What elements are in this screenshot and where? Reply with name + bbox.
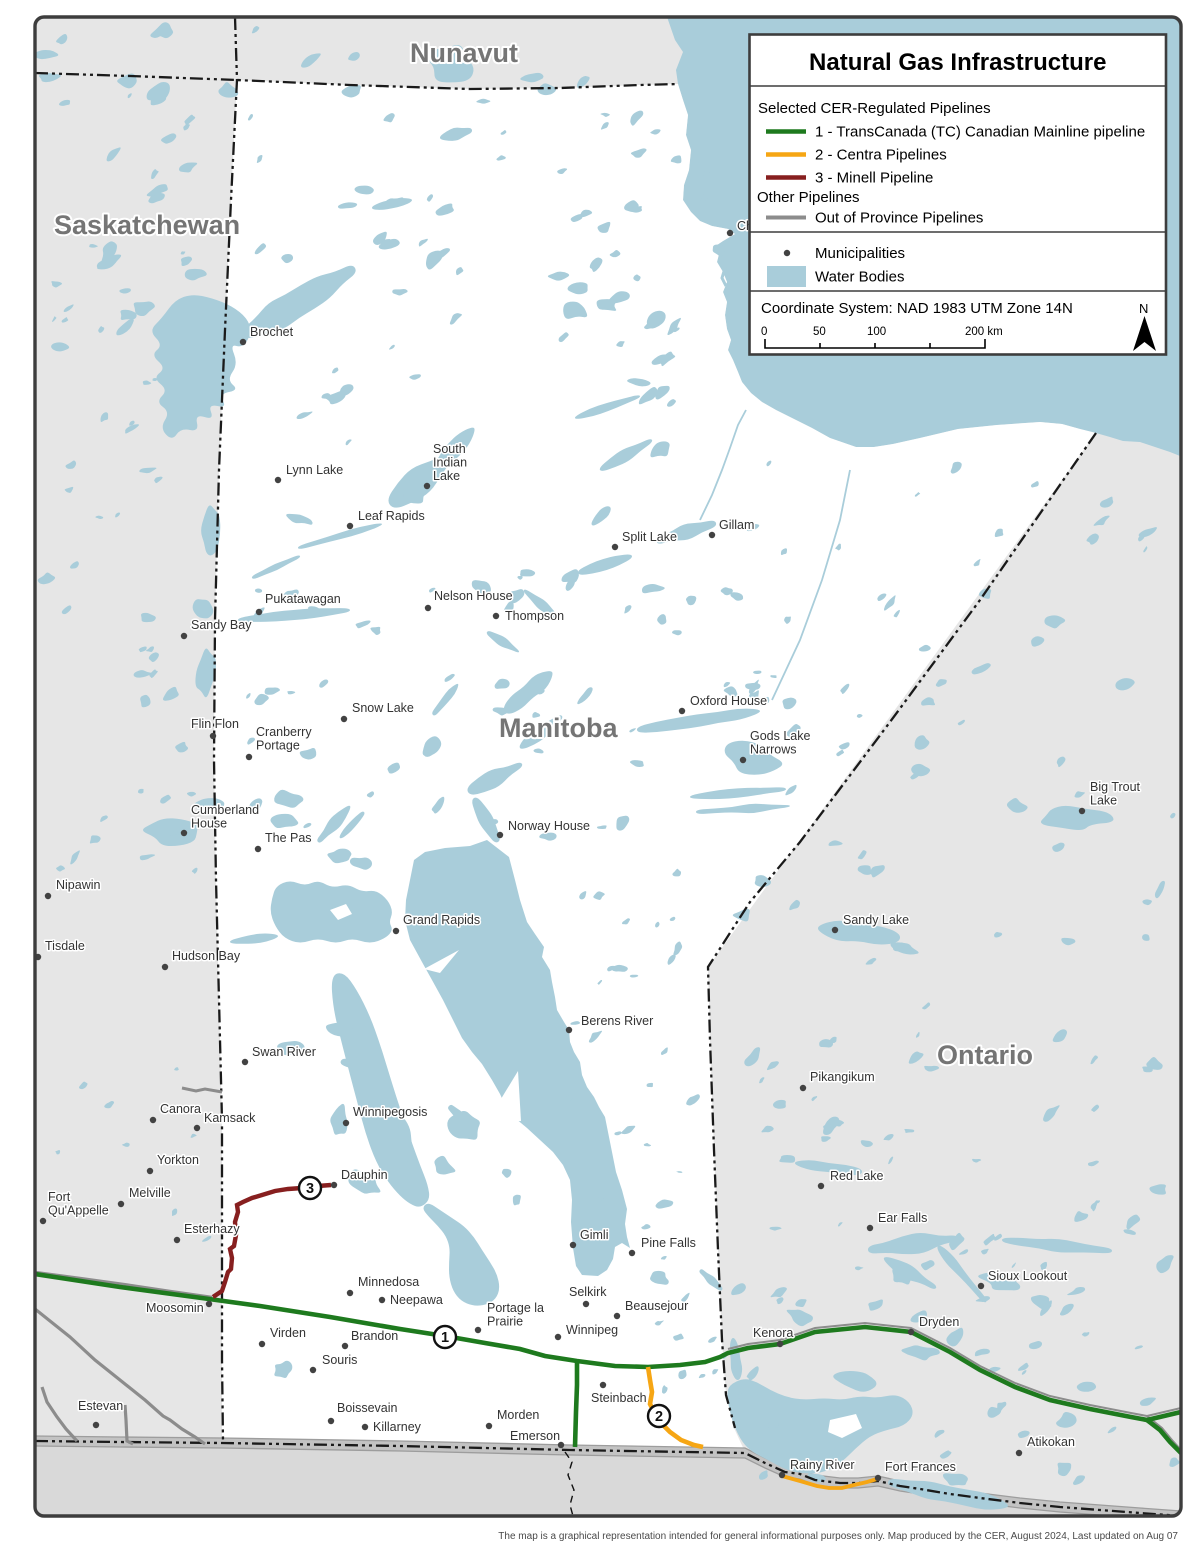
svg-text:Flin Flon: Flin Flon — [191, 717, 239, 731]
svg-text:Swan River: Swan River — [252, 1045, 316, 1059]
svg-text:Lake: Lake — [1090, 794, 1117, 808]
svg-text:Oxford House: Oxford House — [690, 694, 767, 708]
svg-text:Esterhazy: Esterhazy — [184, 1222, 240, 1236]
svg-text:Saskatchewan: Saskatchewan — [54, 210, 240, 240]
svg-text:Gimli: Gimli — [580, 1228, 608, 1242]
svg-text:Pukatawagan: Pukatawagan — [265, 592, 341, 606]
svg-text:Kamsack: Kamsack — [204, 1111, 256, 1125]
svg-text:Emerson: Emerson — [510, 1429, 560, 1443]
svg-text:3: 3 — [306, 1181, 314, 1197]
svg-text:Sioux Lookout: Sioux Lookout — [988, 1269, 1068, 1283]
svg-text:Sandy Lake: Sandy Lake — [843, 913, 909, 927]
svg-text:Lake: Lake — [433, 469, 460, 483]
svg-text:House: House — [191, 817, 227, 831]
svg-text:Municipalities: Municipalities — [815, 245, 905, 262]
svg-text:Morden: Morden — [497, 1408, 539, 1422]
svg-text:Portage: Portage — [256, 739, 300, 753]
svg-text:2: 2 — [655, 1409, 663, 1425]
svg-text:Prairie: Prairie — [487, 1315, 523, 1329]
svg-text:Rainy River: Rainy River — [790, 1458, 855, 1472]
svg-text:Brandon: Brandon — [351, 1329, 398, 1343]
svg-text:2 - Centra Pipelines: 2 - Centra Pipelines — [815, 147, 947, 164]
svg-text:The map is a graphical represe: The map is a graphical representation in… — [498, 1531, 1178, 1542]
svg-text:Winnipeg: Winnipeg — [566, 1323, 618, 1337]
svg-text:Tisdale: Tisdale — [45, 939, 85, 953]
svg-text:3 - Minell Pipeline: 3 - Minell Pipeline — [815, 170, 933, 187]
svg-text:50: 50 — [813, 326, 826, 338]
svg-text:Split Lake: Split Lake — [622, 530, 677, 544]
svg-text:Nipawin: Nipawin — [56, 878, 101, 892]
svg-text:Canora: Canora — [160, 1102, 201, 1116]
svg-text:1: 1 — [441, 1330, 449, 1346]
svg-text:Killarney: Killarney — [373, 1420, 422, 1434]
svg-text:Gods Lake: Gods Lake — [750, 729, 811, 743]
svg-text:Fort: Fort — [48, 1190, 71, 1204]
svg-text:Ontario: Ontario — [937, 1040, 1033, 1070]
svg-text:Selkirk: Selkirk — [569, 1285, 607, 1299]
svg-text:Cumberland: Cumberland — [191, 803, 259, 817]
svg-text:Fort Frances: Fort Frances — [885, 1460, 956, 1474]
svg-text:Qu'Appelle: Qu'Appelle — [48, 1204, 109, 1218]
svg-text:200 km: 200 km — [965, 326, 1003, 338]
svg-text:Neepawa: Neepawa — [390, 1293, 443, 1307]
svg-text:Cranberry: Cranberry — [256, 725, 312, 739]
svg-text:Estevan: Estevan — [78, 1399, 123, 1413]
svg-text:Grand Rapids: Grand Rapids — [403, 913, 480, 927]
svg-text:1 - TransCanada (TC) Canadian: 1 - TransCanada (TC) Canadian Mainline p… — [815, 124, 1145, 141]
svg-text:Water Bodies: Water Bodies — [815, 269, 904, 286]
svg-text:Big Trout: Big Trout — [1090, 780, 1141, 794]
svg-text:Selected CER-Regulated Pipelin: Selected CER-Regulated Pipelines — [758, 100, 991, 117]
svg-text:Leaf Rapids: Leaf Rapids — [358, 509, 425, 523]
svg-text:Indian: Indian — [433, 456, 467, 470]
svg-text:0: 0 — [761, 326, 767, 338]
svg-text:Thompson: Thompson — [505, 609, 564, 623]
svg-text:Snow Lake: Snow Lake — [352, 701, 414, 715]
svg-text:Portage la: Portage la — [487, 1301, 544, 1315]
svg-text:Melville: Melville — [129, 1186, 171, 1200]
svg-text:Coordinate System: NAD 1983 UT: Coordinate System: NAD 1983 UTM Zone 14N — [761, 300, 1073, 317]
svg-text:Pikangikum: Pikangikum — [810, 1070, 875, 1084]
svg-text:Hudson Bay: Hudson Bay — [172, 949, 241, 963]
svg-text:Sandy Bay: Sandy Bay — [191, 618, 252, 632]
svg-text:Atikokan: Atikokan — [1027, 1435, 1075, 1449]
svg-text:Norway House: Norway House — [508, 819, 590, 833]
svg-text:Beausejour: Beausejour — [625, 1299, 688, 1313]
svg-text:Dauphin: Dauphin — [341, 1168, 388, 1182]
svg-text:The Pas: The Pas — [265, 831, 312, 845]
svg-text:Brochet: Brochet — [250, 325, 294, 339]
svg-text:Manitoba: Manitoba — [499, 713, 618, 743]
svg-text:South: South — [433, 442, 466, 456]
svg-text:Other Pipelines: Other Pipelines — [757, 189, 860, 206]
svg-text:Out of Province Pipelines: Out of Province Pipelines — [815, 210, 983, 227]
svg-text:Red Lake: Red Lake — [830, 1169, 884, 1183]
svg-text:Moosomin: Moosomin — [146, 1301, 204, 1315]
svg-text:Virden: Virden — [270, 1326, 306, 1340]
svg-text:Pine Falls: Pine Falls — [641, 1236, 696, 1250]
svg-text:Nelson House: Nelson House — [434, 589, 513, 603]
svg-text:Boissevain: Boissevain — [337, 1401, 397, 1415]
svg-text:100: 100 — [867, 326, 886, 338]
svg-text:Natural Gas Infrastructure: Natural Gas Infrastructure — [809, 49, 1106, 76]
svg-text:Lynn Lake: Lynn Lake — [286, 463, 343, 477]
svg-text:Ear Falls: Ear Falls — [878, 1211, 927, 1225]
svg-text:Nunavut: Nunavut — [410, 38, 518, 68]
svg-text:Kenora: Kenora — [753, 1326, 793, 1340]
svg-text:Winnipegosis: Winnipegosis — [353, 1105, 427, 1119]
svg-text:Souris: Souris — [322, 1353, 357, 1367]
svg-text:Minnedosa: Minnedosa — [358, 1275, 419, 1289]
svg-text:Steinbach: Steinbach — [591, 1391, 647, 1405]
svg-text:Dryden: Dryden — [919, 1315, 959, 1329]
svg-text:Narrows: Narrows — [750, 743, 797, 757]
svg-text:N: N — [1139, 301, 1148, 316]
svg-text:Berens River: Berens River — [581, 1014, 653, 1028]
svg-text:Gillam: Gillam — [719, 518, 754, 532]
svg-text:Yorkton: Yorkton — [157, 1153, 199, 1167]
